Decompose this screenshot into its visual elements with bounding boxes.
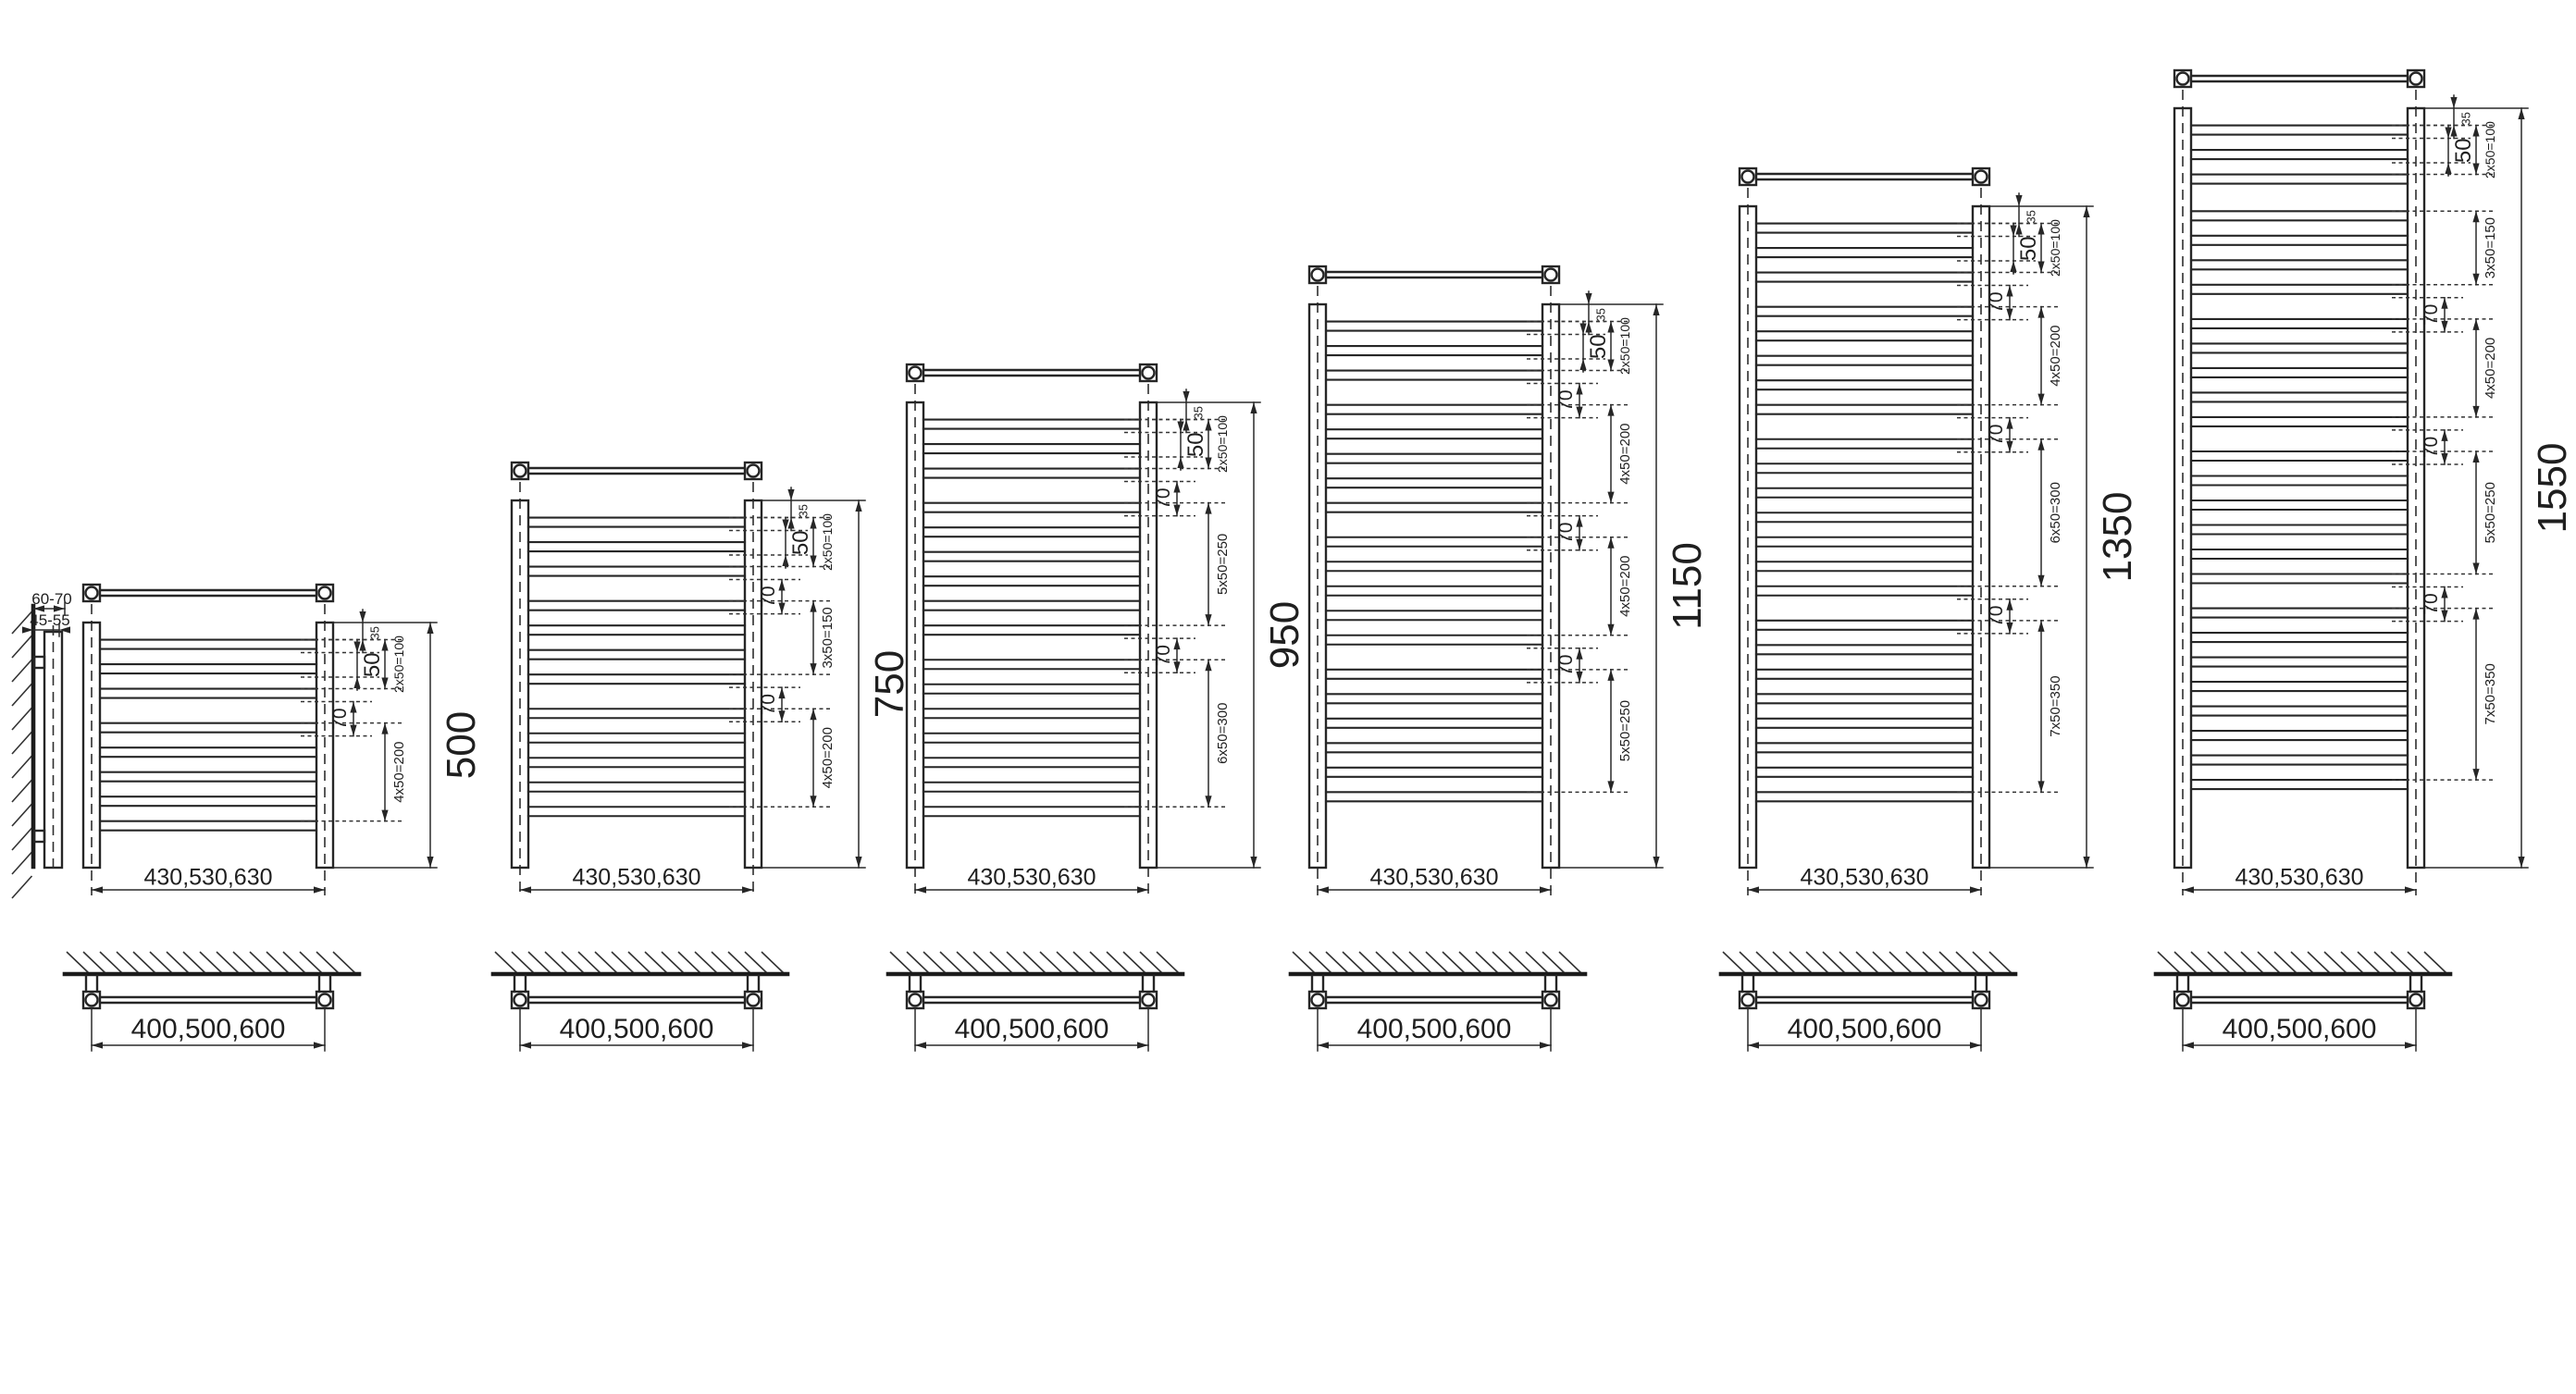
dimension-label: 35 (367, 626, 381, 639)
dimension-label: 6x50=300 (2048, 482, 2063, 543)
dimension-label: 4x50=200 (2048, 325, 2063, 386)
side-offset-label: 45-55 (30, 611, 69, 629)
radiator-1350: 35502x50=1004x50=2006x50=3007x50=3507070… (1721, 168, 2140, 1051)
dimension-label: 4x50=200 (820, 727, 836, 788)
width-dimension-label: 430,530,630 (1800, 865, 1928, 891)
side-view: 60-7045-55 (12, 590, 72, 898)
dimension-label: 2x50=100 (2048, 219, 2062, 277)
dimension-label: 2x50=100 (1617, 317, 1632, 375)
radiator-dimension-diagram: 60-7045-5535502x50=1004x50=20070500430,5… (0, 0, 2576, 1394)
height-dimension-label: 950 (1262, 601, 1307, 669)
dimension-label: 5x50=250 (1215, 534, 1231, 595)
top-view (1740, 168, 1989, 185)
dimension-label: 6x50=300 (1215, 703, 1231, 764)
dimension-label: 2x50=100 (2483, 121, 2497, 179)
mount-spacing-label: 400,500,600 (1357, 1014, 1512, 1044)
dimension-label: 4x50=200 (2483, 338, 2498, 399)
radiator-1150: 35502x50=1004x50=2004x50=2005x50=2507070… (1291, 266, 1710, 1051)
top-view (1309, 266, 1559, 283)
mount-spacing-label: 400,500,600 (955, 1014, 1109, 1044)
dimension-label: 70 (329, 708, 351, 729)
dimension-label: 70 (758, 586, 779, 607)
side-depth-label: 60-70 (31, 590, 71, 608)
dimension-label: 35 (2024, 210, 2037, 223)
mount-spacing-label: 400,500,600 (131, 1014, 286, 1044)
width-dimension-label: 430,530,630 (572, 865, 700, 891)
dimensions: 35502x50=1003x50=1504x50=2007070750430,5… (520, 487, 912, 894)
wall-mount-view: 400,500,600 (65, 952, 359, 1051)
dimension-label: 70 (2421, 437, 2442, 458)
dimension-label: 70 (1153, 645, 1174, 666)
right-rail (2408, 108, 2424, 868)
dimension-label: 50 (1183, 432, 1208, 457)
dimension-label: 50 (360, 652, 385, 677)
front-view (907, 402, 1157, 868)
front-view (1740, 206, 1989, 868)
dimensions: 35502x50=1005x50=2506x50=3007070950430,5… (915, 389, 1307, 894)
wall-mount-view: 400,500,600 (493, 952, 787, 1051)
dimensions: 35502x50=1004x50=2004x50=2005x50=2507070… (1318, 291, 1710, 894)
radiator-1550: 35502x50=1003x50=1504x50=2005x50=2507x50… (2156, 70, 2575, 1051)
top-view (907, 364, 1157, 381)
dimension-label: 35 (1593, 308, 1607, 321)
width-dimension-label: 430,530,630 (967, 865, 1096, 891)
dimension-label: 2x50=100 (391, 635, 406, 693)
wall-mount-view: 400,500,600 (888, 952, 1183, 1051)
dimension-label: 2x50=100 (820, 513, 835, 571)
dimension-label: 4x50=200 (1617, 556, 1633, 617)
front-view (83, 623, 333, 868)
dimension-label: 70 (1986, 291, 2007, 313)
dimensions: 35502x50=1004x50=2006x50=3007x50=3507070… (1748, 193, 2140, 894)
dimension-label: 70 (2421, 593, 2442, 614)
dimension-label: 50 (1586, 334, 1611, 359)
dimension-label: 5x50=250 (2483, 482, 2498, 543)
dimension-label: 50 (788, 530, 813, 555)
height-dimension-label: 1150 (1665, 542, 1710, 630)
dimension-label: 70 (1153, 487, 1174, 509)
width-dimension-label: 430,530,630 (2235, 865, 2363, 891)
front-view (512, 500, 762, 868)
radiator-950: 35502x50=1005x50=2506x50=3007070950430,5… (888, 364, 1307, 1051)
dimension-label: 2x50=100 (1215, 415, 1230, 473)
mount-spacing-label: 400,500,600 (560, 1014, 714, 1044)
dimension-label: 70 (1986, 606, 2007, 627)
dimensions: 35502x50=1004x50=20070500430,530,630 (92, 610, 484, 894)
dimension-label: 70 (1555, 655, 1577, 676)
dimension-label: 35 (796, 504, 810, 517)
mount-spacing-label: 400,500,600 (2223, 1014, 2377, 1044)
dimension-label: 7x50=350 (2048, 675, 2063, 736)
height-dimension-label: 1550 (2530, 443, 2575, 534)
height-dimension-label: 750 (867, 650, 912, 718)
height-dimension-label: 1350 (2095, 492, 2140, 583)
wall-mount-view: 400,500,600 (1291, 952, 1585, 1051)
top-view (2174, 70, 2424, 87)
wall-mount-view: 400,500,600 (1721, 952, 2015, 1051)
front-view (1309, 304, 1559, 868)
dimension-label: 70 (2421, 304, 2442, 326)
technical-drawing-canvas: 60-7045-5535502x50=1004x50=20070500430,5… (0, 0, 2576, 1394)
dimension-label: 70 (1555, 389, 1577, 411)
dimension-label: 70 (1555, 523, 1577, 544)
dimension-label: 35 (2458, 112, 2472, 125)
dimension-label: 4x50=200 (391, 741, 407, 802)
width-dimension-label: 430,530,630 (143, 865, 272, 891)
dimension-label: 70 (758, 694, 779, 715)
front-view (2174, 108, 2424, 868)
dimension-label: 4x50=200 (1617, 423, 1633, 484)
dimension-label: 5x50=250 (1617, 700, 1633, 761)
dimension-label: 3x50=150 (820, 607, 836, 668)
dimension-label: 50 (2016, 236, 2041, 261)
dimension-label: 35 (1191, 406, 1205, 419)
dimension-label: 50 (2451, 138, 2476, 163)
mount-spacing-label: 400,500,600 (1788, 1014, 1942, 1044)
top-view (512, 463, 762, 479)
left-rail (2174, 108, 2191, 868)
top-view (83, 585, 333, 601)
radiator-750: 35502x50=1003x50=1504x50=2007070750430,5… (493, 463, 912, 1051)
dimension-label: 70 (1986, 425, 2007, 446)
dimensions: 35502x50=1003x50=1504x50=2005x50=2507x50… (2183, 95, 2575, 894)
height-dimension-label: 500 (439, 711, 484, 779)
width-dimension-label: 430,530,630 (1369, 865, 1498, 891)
wall-mount-view: 400,500,600 (2156, 952, 2450, 1051)
radiator-500: 35502x50=1004x50=20070500430,530,630400,… (65, 585, 484, 1051)
dimension-label: 7x50=350 (2483, 663, 2498, 724)
dimension-label: 3x50=150 (2483, 217, 2498, 278)
